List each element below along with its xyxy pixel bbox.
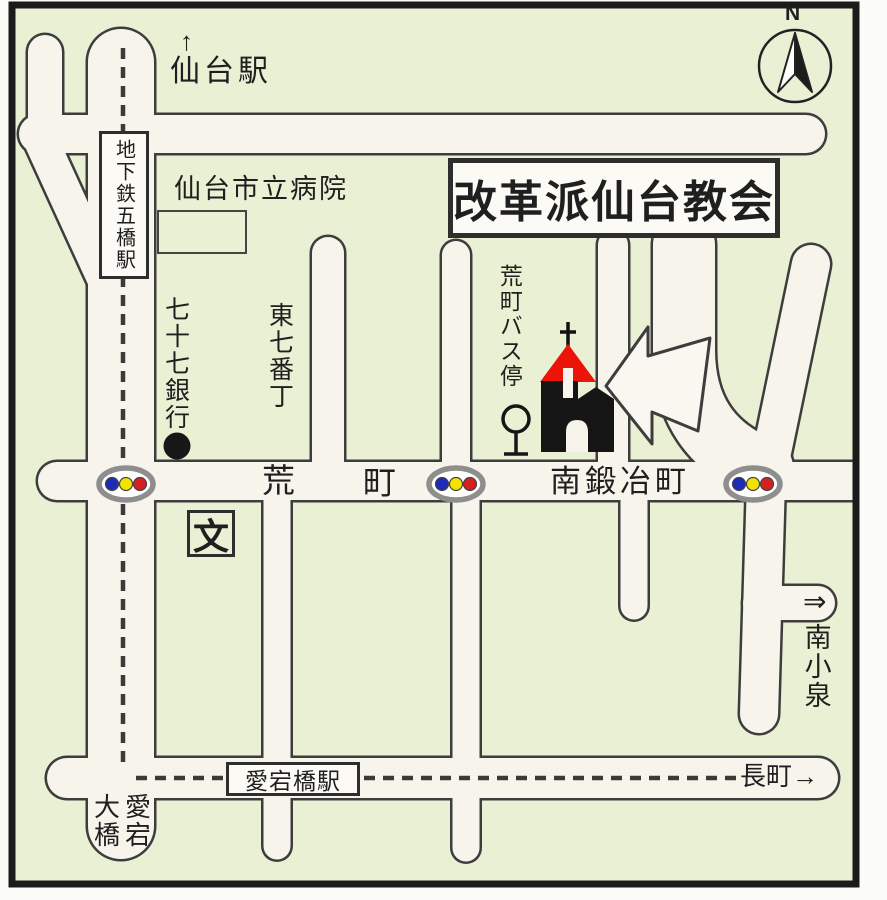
atagobashi-station-box: 愛宕橋駅 (226, 762, 360, 796)
city-hospital-label: 仙台市立病院 (174, 175, 348, 204)
traffic-signal-west (99, 468, 153, 500)
school-symbol-label: 文 (193, 508, 229, 560)
subway-station-box: 地下鉄五橋駅 (99, 131, 149, 279)
aramachi-street-label-1: 荒 (262, 464, 295, 499)
school-symbol-box: 文 (187, 510, 235, 557)
compass-north-label: N (785, 3, 800, 25)
aramachi-street-label-2: 町 (363, 466, 396, 501)
subway-station-label: 地下鉄五橋駅 (110, 139, 139, 271)
minami-koizumi-label: 南小泉 (801, 623, 830, 710)
bank-label: 七十七銀行 (162, 296, 189, 431)
minami-koizumi-arrow-icon: ⇒ (803, 587, 826, 617)
church-window-slit (563, 368, 573, 398)
traffic-signal-center (429, 468, 483, 500)
atago-ohashi-label-right: 愛宕 (122, 793, 150, 849)
higashi-shichibancho-label: 東七番丁 (266, 302, 293, 410)
traffic-signal-east (726, 468, 780, 500)
atagobashi-station-label: 愛宕橋駅 (245, 762, 341, 796)
church-door-arch (566, 420, 588, 452)
atago-ohashi-label-left: 大橋 (91, 793, 119, 849)
bus-stop-label: 荒町バス停 (497, 264, 521, 389)
bank-marker-dot (164, 433, 191, 460)
map-title: 改革派仙台教会 (453, 166, 775, 230)
minami-kajimachi-street-label: 南鍛冶町 (550, 466, 690, 499)
sendai-station-arrow-icon: ↑ (180, 28, 193, 56)
sendai-station-label: 仙台駅 (170, 56, 272, 88)
church-access-map: 改革派仙台教会 地下鉄五橋駅 愛宕橋駅 文 ↑ 仙台駅 仙台市立病院 七十七銀行… (0, 0, 887, 900)
nagamachi-label: 長町→ (740, 763, 818, 791)
title-box: 改革派仙台教会 (448, 158, 780, 238)
